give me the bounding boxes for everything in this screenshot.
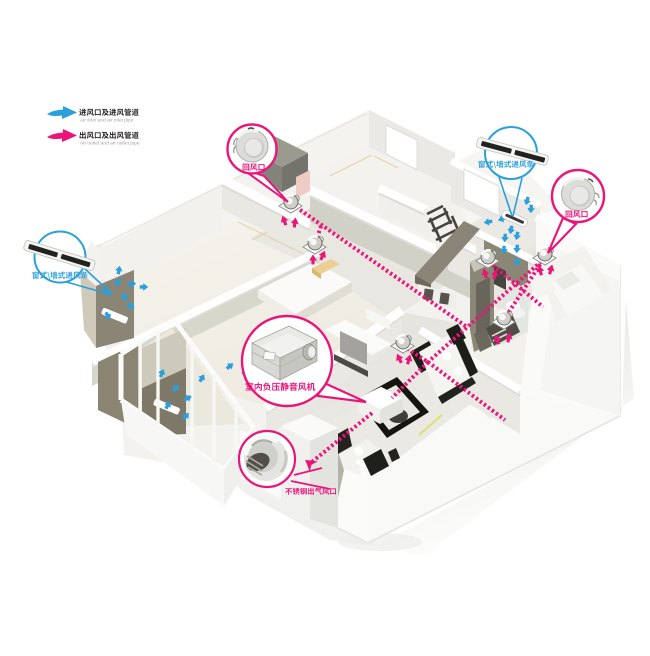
svg-text:Air inlet and air inlet pipe: Air inlet and air inlet pipe <box>80 118 134 124</box>
svg-text:Air outlet and air outlet pipe: Air outlet and air outlet pipe <box>80 141 140 147</box>
